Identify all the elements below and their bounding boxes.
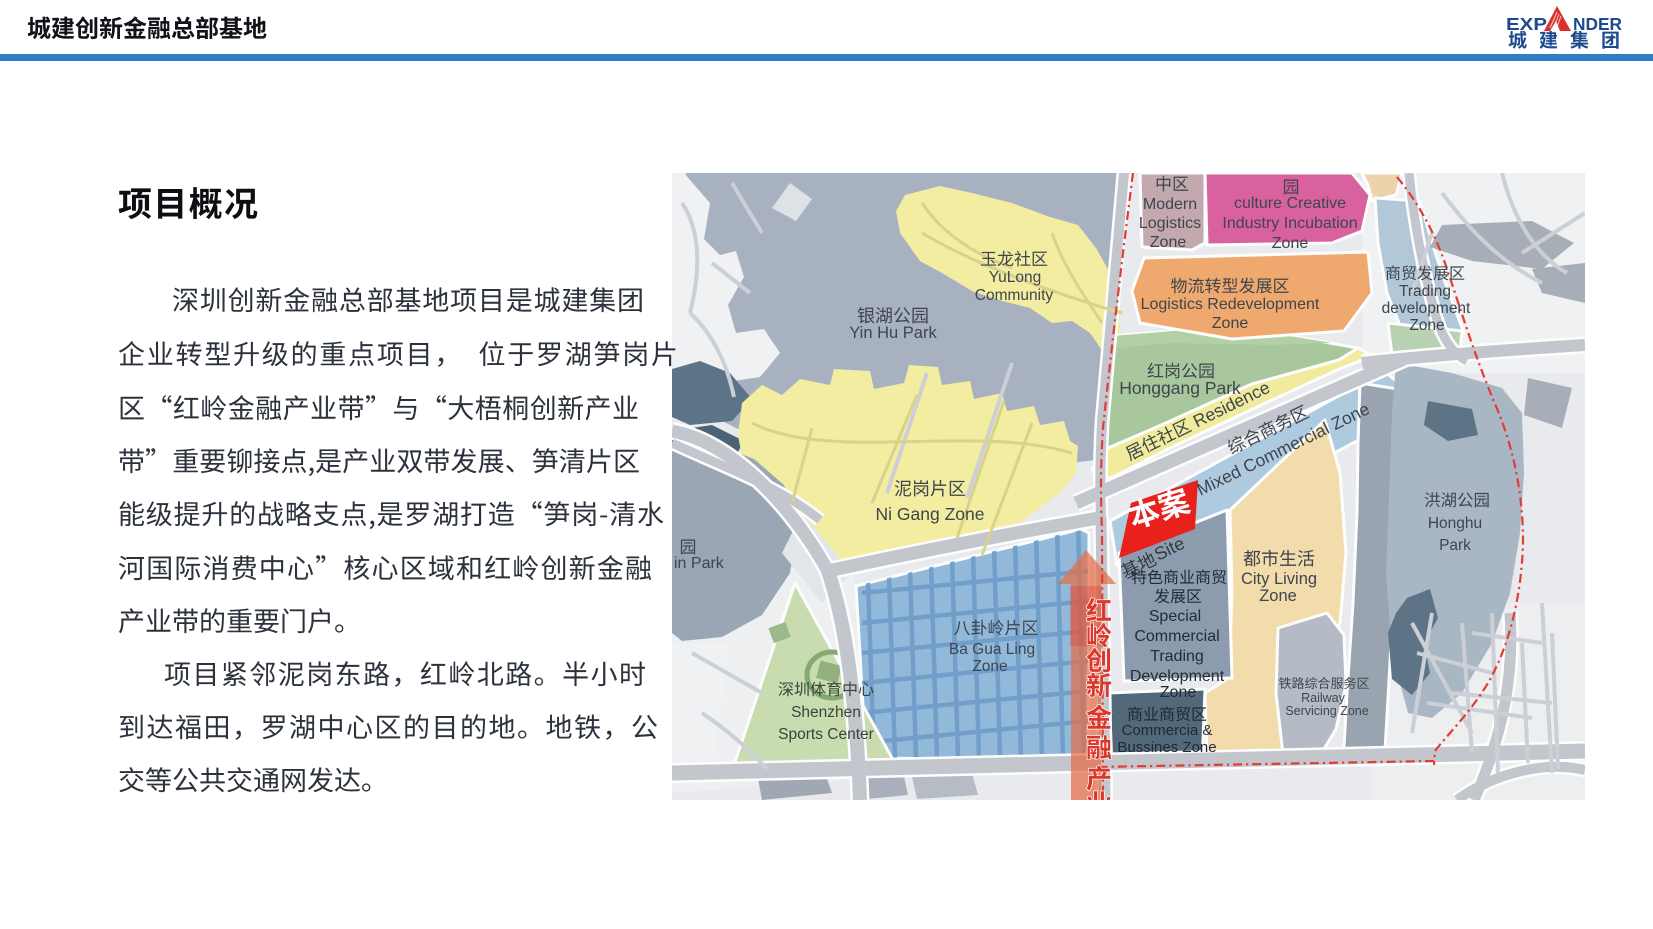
svg-text:Ba Gua Ling: Ba Gua Ling bbox=[949, 641, 1035, 658]
svg-text:Commercial: Commercial bbox=[1134, 628, 1219, 645]
svg-text:Development: Development bbox=[1130, 668, 1225, 685]
svg-text:Zone: Zone bbox=[972, 658, 1007, 675]
svg-text:Community: Community bbox=[975, 287, 1054, 304]
svg-text:City Living: City Living bbox=[1241, 570, 1317, 588]
svg-text:Special: Special bbox=[1149, 608, 1201, 625]
svg-text:EXP: EXP bbox=[1506, 14, 1547, 34]
svg-text:Zone: Zone bbox=[1212, 315, 1249, 332]
svg-text:Zone: Zone bbox=[1160, 684, 1197, 701]
svg-text:Zone: Zone bbox=[1409, 317, 1444, 334]
svg-text:Modern: Modern bbox=[1143, 196, 1197, 213]
svg-text:Yin Hu Park: Yin Hu Park bbox=[849, 324, 937, 342]
svg-text:Railway: Railway bbox=[1301, 691, 1346, 705]
svg-text:Trading: Trading bbox=[1150, 648, 1204, 665]
svg-text:Trading: Trading bbox=[1399, 283, 1451, 300]
svg-text:Ni Gang Zone: Ni Gang Zone bbox=[876, 504, 985, 524]
svg-text:Zone: Zone bbox=[1150, 234, 1187, 251]
svg-text:Park: Park bbox=[1439, 537, 1471, 554]
svg-text:Sports Center: Sports Center bbox=[778, 726, 874, 743]
svg-text:Bussines Zone: Bussines Zone bbox=[1117, 739, 1216, 756]
svg-text:Zone: Zone bbox=[1259, 587, 1297, 605]
svg-text:in Park: in Park bbox=[674, 555, 725, 572]
svg-text:Honggang Park: Honggang Park bbox=[1119, 378, 1241, 398]
svg-text:Servicing Zone: Servicing Zone bbox=[1285, 704, 1368, 718]
svg-text:Commercia &: Commercia & bbox=[1122, 722, 1213, 739]
svg-text:Honghu: Honghu bbox=[1428, 515, 1482, 532]
svg-text:Logistics Redevelopment: Logistics Redevelopment bbox=[1141, 296, 1320, 313]
svg-text:Zone: Zone bbox=[1272, 235, 1309, 252]
svg-text:Logistics: Logistics bbox=[1139, 215, 1201, 232]
svg-text:culture Creative: culture Creative bbox=[1234, 195, 1346, 212]
svg-text:Shenzhen: Shenzhen bbox=[791, 704, 861, 721]
svg-text:Industry Incubation: Industry Incubation bbox=[1222, 215, 1357, 232]
svg-text:development: development bbox=[1382, 300, 1471, 317]
svg-text:YuLong: YuLong bbox=[989, 269, 1042, 286]
